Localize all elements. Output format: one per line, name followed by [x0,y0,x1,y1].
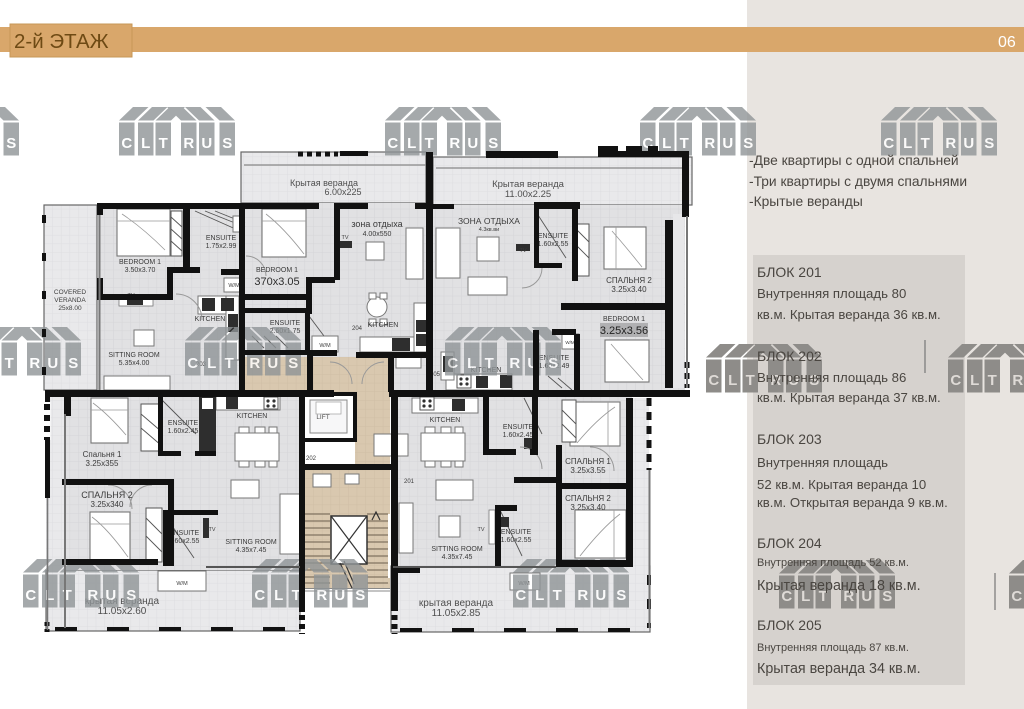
svg-text:СПАЛЬНЯ 2: СПАЛЬНЯ 2 [606,276,652,285]
svg-text:11.05x2.85: 11.05x2.85 [432,608,481,619]
svg-text:W/M: W/M [565,340,574,345]
svg-text:201: 201 [404,479,415,485]
svg-text:-Крытые веранды: -Крытые веранды [749,194,863,209]
svg-text:KITCHEN: KITCHEN [368,322,399,329]
svg-text:3.25x3.55: 3.25x3.55 [570,466,606,475]
svg-text:SITTING ROOM: SITTING ROOM [225,539,277,546]
svg-text:52 кв.м. Крытая веранда 10: 52 кв.м. Крытая веранда 10 [757,477,926,492]
svg-text:1.60x2.55: 1.60x2.55 [538,241,569,248]
svg-text:11.05x2.60: 11.05x2.60 [98,606,147,617]
svg-text:3.50x3.70: 3.50x3.70 [125,267,156,274]
svg-text:кв.м. Крытая веранда 36 кв.м.: кв.м. Крытая веранда 36 кв.м. [757,307,941,322]
svg-text:BEDROOM 1: BEDROOM 1 [603,316,645,323]
svg-text:TV: TV [208,527,215,533]
svg-text:СПАЛЬНЯ 2: СПАЛЬНЯ 2 [81,490,133,500]
svg-text:3.25x3.56: 3.25x3.56 [600,325,648,337]
svg-text:ЗОНА ОТДЫХА: ЗОНА ОТДЫХА [458,216,520,226]
svg-text:KITCHEN: KITCHEN [430,417,461,424]
svg-text:3.25x3.40: 3.25x3.40 [570,503,606,512]
svg-text:KITCHEN: KITCHEN [237,413,268,420]
svg-text:2-й ЭТАЖ: 2-й ЭТАЖ [14,30,109,53]
svg-text:ENSUITE: ENSUITE [270,320,301,327]
svg-text:-Три квартиры с двумя спальням: -Три квартиры с двумя спальнями [749,174,967,189]
svg-text:кв.м. Открытая веранда 9 кв.м.: кв.м. Открытая веранда 9 кв.м. [757,495,948,510]
svg-text:3.25х3.40: 3.25х3.40 [611,285,647,294]
svg-text:5.35x4.00: 5.35x4.00 [119,360,150,367]
svg-text:зона отдыха: зона отдыха [351,219,402,229]
svg-text:3.25x340: 3.25x340 [91,500,124,509]
svg-text:W/M: W/M [176,581,188,587]
svg-text:ENSUITE: ENSUITE [503,424,534,431]
svg-text:ENSUITE: ENSUITE [538,233,569,240]
svg-text:3.25x355: 3.25x355 [86,459,119,468]
svg-text:COVERED: COVERED [54,289,86,296]
svg-text:202: 202 [306,456,317,462]
svg-text:1.75x2.99: 1.75x2.99 [206,243,237,250]
svg-text:W/M: W/M [228,283,240,289]
svg-text:4.35x7.45: 4.35x7.45 [442,554,473,561]
svg-text:ENSUITE: ENSUITE [501,529,532,536]
svg-text:25x8.00: 25x8.00 [58,305,82,312]
svg-text:SITTING ROOM: SITTING ROOM [431,546,483,553]
svg-text:11.00x2.25: 11.00x2.25 [505,189,551,200]
svg-text:4.3кв.ви: 4.3кв.ви [479,227,500,233]
svg-text:TV: TV [341,235,348,241]
svg-text:ENSUITE: ENSUITE [206,235,237,242]
svg-text:1.60x2.45: 1.60x2.45 [168,428,199,435]
svg-text:1.60x2.55: 1.60x2.55 [501,537,532,544]
svg-text:4.00x550: 4.00x550 [363,231,392,238]
svg-text:Внутренняя площадь 86: Внутренняя площадь 86 [757,370,906,385]
svg-text:БЛОК 203: БЛОК 203 [757,431,822,447]
svg-text:-Две квартиры с одной спальней: -Две квартиры с одной спальней [749,153,959,168]
svg-text:TV: TV [519,248,526,254]
svg-text:VERANDA: VERANDA [54,297,86,304]
svg-text:1.60x2.45: 1.60x2.45 [503,432,534,439]
svg-text:W/M: W/M [319,343,331,349]
svg-text:БЛОК 204: БЛОК 204 [757,535,822,551]
svg-text:СПАЛЬНЯ 1: СПАЛЬНЯ 1 [565,457,611,466]
svg-text:БЛОК 205: БЛОК 205 [757,617,822,633]
svg-text:TV: TV [477,527,484,533]
svg-text:БЛОК 202: БЛОК 202 [757,348,822,364]
svg-text:ENSUITE: ENSUITE [168,420,199,427]
svg-text:Внутренняя площадь 52 кв.м.: Внутренняя площадь 52 кв.м. [757,557,909,569]
svg-text:БЛОК 201: БЛОК 201 [757,264,822,280]
svg-text:BEDROOM 1: BEDROOM 1 [119,259,161,266]
svg-text:Внутренняя площадь: Внутренняя площадь [757,455,888,470]
svg-text:204: 204 [352,326,363,332]
svg-text:06: 06 [998,34,1016,51]
svg-text:СПАЛЬНЯ 2: СПАЛЬНЯ 2 [565,494,611,503]
svg-text:Внутренняя площадь 87 кв.м.: Внутренняя площадь 87 кв.м. [757,642,909,654]
svg-text:4.35x7.45: 4.35x7.45 [236,547,267,554]
svg-text:Крытая веранда 34 кв.м.: Крытая веранда 34 кв.м. [757,661,921,677]
svg-text:кв.м. Крытая веранда 37 кв.м.: кв.м. Крытая веранда 37 кв.м. [757,390,941,405]
svg-text:Крытая веранда 18 кв.м.: Крытая веранда 18 кв.м. [757,578,921,594]
svg-text:6.00x225: 6.00x225 [324,187,361,197]
svg-text:BEDROOM 1: BEDROOM 1 [256,267,298,274]
svg-text:Внутренняя площадь 80: Внутренняя площадь 80 [757,286,906,301]
svg-text:LIFT: LIFT [316,414,329,421]
svg-text:KITCHEN: KITCHEN [195,316,226,323]
svg-text:SITTING ROOM: SITTING ROOM [108,352,160,359]
svg-text:Спальня 1: Спальня 1 [83,450,122,459]
svg-text:370x3.05: 370x3.05 [254,276,299,288]
